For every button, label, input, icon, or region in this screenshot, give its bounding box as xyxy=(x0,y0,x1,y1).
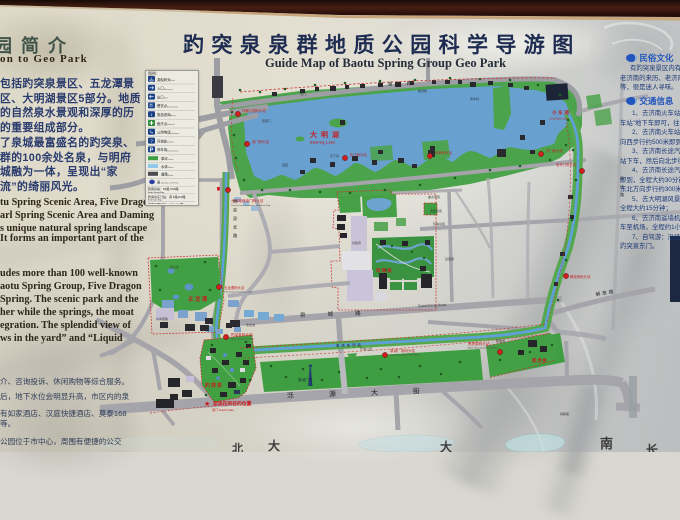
svg-text:Springs and Pools: Springs and Pools xyxy=(161,182,180,185)
svg-text:Entrance: Entrance xyxy=(164,88,174,91)
svg-text:Lawn: Lawn xyxy=(168,159,174,161)
svg-text:Daming Lake: Daming Lake xyxy=(310,141,336,145)
svg-text:趵突泉站：66路 K96路: 趵突泉站：66路 K96路 xyxy=(148,186,179,191)
svg-text:Medical: Medical xyxy=(167,124,175,126)
svg-text:匡山泉: 匡山泉 xyxy=(170,264,179,269)
svg-text:出口: 出口 xyxy=(157,94,164,99)
svg-text:趵突泉: 趵突泉 xyxy=(205,382,223,389)
svg-text:小东湖: 小东湖 xyxy=(552,109,570,116)
svg-text:?: ? xyxy=(150,139,153,144)
svg-text:黑虎泉: 黑虎泉 xyxy=(532,357,548,364)
svg-text:Quancheng Square Boat Stop: Quancheng Square Boat Stop xyxy=(390,354,420,357)
svg-text:东门码头站: 东门码头站 xyxy=(546,148,564,153)
svg-text:西门码头站: 西门码头站 xyxy=(252,139,270,144)
svg-text:Inquiry: Inquiry xyxy=(169,114,176,117)
svg-text:司家码头站: 司家码头站 xyxy=(435,150,453,155)
svg-text:Wharf: Wharf xyxy=(169,79,175,82)
svg-text:Exit: Exit xyxy=(164,97,168,100)
svg-text:老东门码头站: 老东门码头站 xyxy=(556,162,577,167)
svg-text:Baotu Spring Stop: Baotu Spring Stop xyxy=(148,191,165,194)
svg-text:南丰祠: 南丰祠 xyxy=(470,96,479,101)
svg-text:南门 South Gate: 南门 South Gate xyxy=(212,407,234,412)
svg-text:珍珠泉: 珍珠泉 xyxy=(376,267,393,274)
svg-text:黑虎泉西路: 黑虎泉西路 xyxy=(336,342,363,348)
svg-text:大明湖: 大明湖 xyxy=(310,130,343,139)
svg-text:解放阁: 解放阁 xyxy=(496,338,505,343)
svg-text:饮虎池: 饮虎池 xyxy=(246,322,255,327)
svg-text:Small East Lake: Small East Lake xyxy=(549,117,568,121)
svg-text:历下亭: 历下亭 xyxy=(330,153,339,158)
svg-text:舜耕路: 舜耕路 xyxy=(560,411,569,416)
svg-text:Baotu Spring Boat Stop: Baotu Spring Boat Stop xyxy=(231,338,255,341)
svg-text:Restaurant: Restaurant xyxy=(167,105,178,108)
svg-text:北门: 北门 xyxy=(300,91,306,96)
svg-text:超然楼: 超然楼 xyxy=(418,88,427,93)
svg-text:县西巷: 县西巷 xyxy=(445,256,454,261)
svg-text:北: 北 xyxy=(232,441,243,452)
svg-text:Parking Lot: Parking Lot xyxy=(167,149,178,152)
svg-text:Black Tiger Spring Boat Statio: Black Tiger Spring Boat Station xyxy=(468,347,499,350)
svg-text:您现在所在的位置: 您现在所在的位置 xyxy=(213,400,252,407)
svg-text:大: 大 xyxy=(268,438,280,452)
svg-text:遐园: 遐园 xyxy=(282,162,288,167)
svg-text:南: 南 xyxy=(600,436,613,451)
svg-text:黑虎泉码头站: 黑虎泉码头站 xyxy=(468,341,490,346)
svg-text:共青团路: 共青团路 xyxy=(156,316,168,321)
svg-text:环城公园: 环城公园 xyxy=(360,346,372,351)
svg-text:Water: Water xyxy=(168,166,174,169)
svg-text:西南门: 西南门 xyxy=(262,118,271,123)
svg-text:泉城广场: 泉城广场 xyxy=(298,377,313,382)
svg-text:Road: Road xyxy=(168,175,174,177)
svg-text:趵突泉东门站：调 1路103路: 趵突泉东门站：调 1路103路 xyxy=(148,194,186,199)
svg-text:长: 长 xyxy=(646,442,659,452)
svg-text:西更道街: 西更道街 xyxy=(430,208,442,213)
svg-text:大: 大 xyxy=(440,439,452,452)
svg-text:P: P xyxy=(150,147,154,153)
svg-text:五龙潭: 五龙潭 xyxy=(188,295,209,303)
svg-text:曲水亭街: 曲水亭街 xyxy=(428,194,440,199)
svg-text:入口: 入口 xyxy=(157,87,164,91)
svg-text:趵突泉南门站：K52 K96路: 趵突泉南门站：K52 K96路 xyxy=(148,201,184,204)
svg-text:历下码头站: 历下码头站 xyxy=(350,152,368,157)
svg-text:五龙潭码头站: 五龙潭码头站 xyxy=(224,285,245,290)
svg-text:珍珠泉街: 珍珠泉街 xyxy=(433,221,445,226)
svg-text:解放桥码头站: 解放桥码头站 xyxy=(570,274,591,279)
svg-text:省政府: 省政府 xyxy=(352,240,361,245)
svg-text:趵突泉码头站: 趵突泉码头站 xyxy=(231,332,253,337)
svg-text:Five Dragon Pond Boat Stop: Five Dragon Pond Boat Stop xyxy=(224,291,253,294)
svg-text:East Gate Stop: East Gate Stop xyxy=(148,198,162,201)
svg-text:泉城广场码头站: 泉城广场码头站 xyxy=(390,348,416,353)
svg-text:Inquiry: Inquiry xyxy=(167,141,174,144)
svg-text:泉城路: 泉城路 xyxy=(300,308,383,319)
svg-text:Telephone: Telephone xyxy=(169,133,180,135)
svg-text:环城公园码头站: 环城公园码头站 xyxy=(242,108,266,113)
